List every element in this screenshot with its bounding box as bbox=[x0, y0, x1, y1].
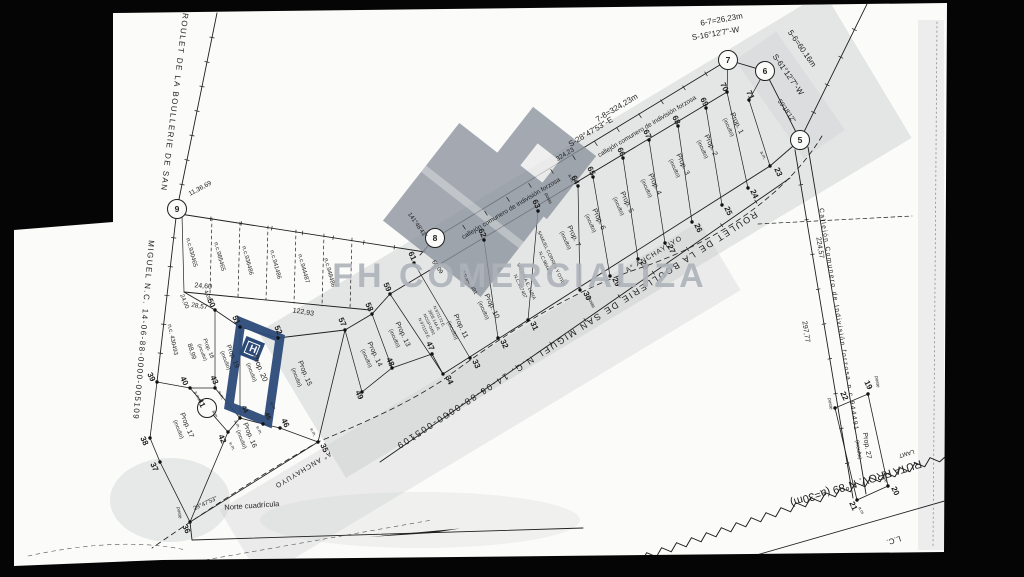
vertex-dot bbox=[647, 138, 650, 141]
vertex-dot bbox=[591, 175, 594, 178]
vertex-dot bbox=[536, 209, 539, 212]
vertex-dot bbox=[526, 318, 529, 321]
vertex-dot bbox=[370, 312, 373, 315]
vertex-dot bbox=[704, 106, 707, 109]
vertex-dot bbox=[276, 336, 279, 339]
vertex-dot bbox=[278, 426, 281, 429]
station-number: 8 bbox=[433, 233, 438, 243]
vertex-dot bbox=[746, 186, 749, 189]
vertex-dot bbox=[441, 372, 444, 375]
vertex-dot bbox=[720, 203, 723, 206]
vertex-dot bbox=[261, 422, 264, 425]
vertex-dot bbox=[226, 430, 229, 433]
vertex-dot bbox=[213, 308, 216, 311]
station-number: 5 bbox=[798, 135, 803, 145]
vertex-dot bbox=[886, 484, 889, 487]
vertex-dot bbox=[390, 366, 393, 369]
vertex-dot bbox=[496, 336, 499, 339]
vertex-dot bbox=[213, 386, 216, 389]
watermark-text: FH COMERCIALIZA bbox=[332, 257, 707, 295]
station-number: 9 bbox=[175, 204, 180, 214]
vertex-dot bbox=[158, 460, 161, 463]
vertex-dot bbox=[316, 440, 319, 443]
scanned-survey-plan: 56789 ROULET DE LA BOULLERIE DE SANMIGUE… bbox=[0, 0, 1024, 577]
station-number: 6 bbox=[763, 66, 768, 76]
vertex-dot bbox=[833, 406, 836, 409]
vertex-dot bbox=[238, 325, 241, 328]
vertex-dot bbox=[468, 356, 471, 359]
vertex-dot bbox=[482, 238, 485, 241]
vertex-dot bbox=[188, 386, 191, 389]
vertex-dot bbox=[676, 124, 679, 127]
vertex-dot bbox=[576, 184, 579, 187]
station-number: 7 bbox=[726, 55, 731, 65]
vertex-dot bbox=[621, 156, 624, 159]
vertex-dot bbox=[430, 352, 433, 355]
survey-map-canvas: 56789 ROULET DE LA BOULLERIE DE SANMIGUE… bbox=[0, 0, 1024, 577]
vertex-dot bbox=[690, 220, 693, 223]
vertex-dot bbox=[768, 164, 771, 167]
vertex-dot bbox=[866, 392, 869, 395]
vertex-dot bbox=[238, 416, 241, 419]
vertex-dot bbox=[155, 380, 158, 383]
vertex-dot bbox=[343, 328, 346, 331]
